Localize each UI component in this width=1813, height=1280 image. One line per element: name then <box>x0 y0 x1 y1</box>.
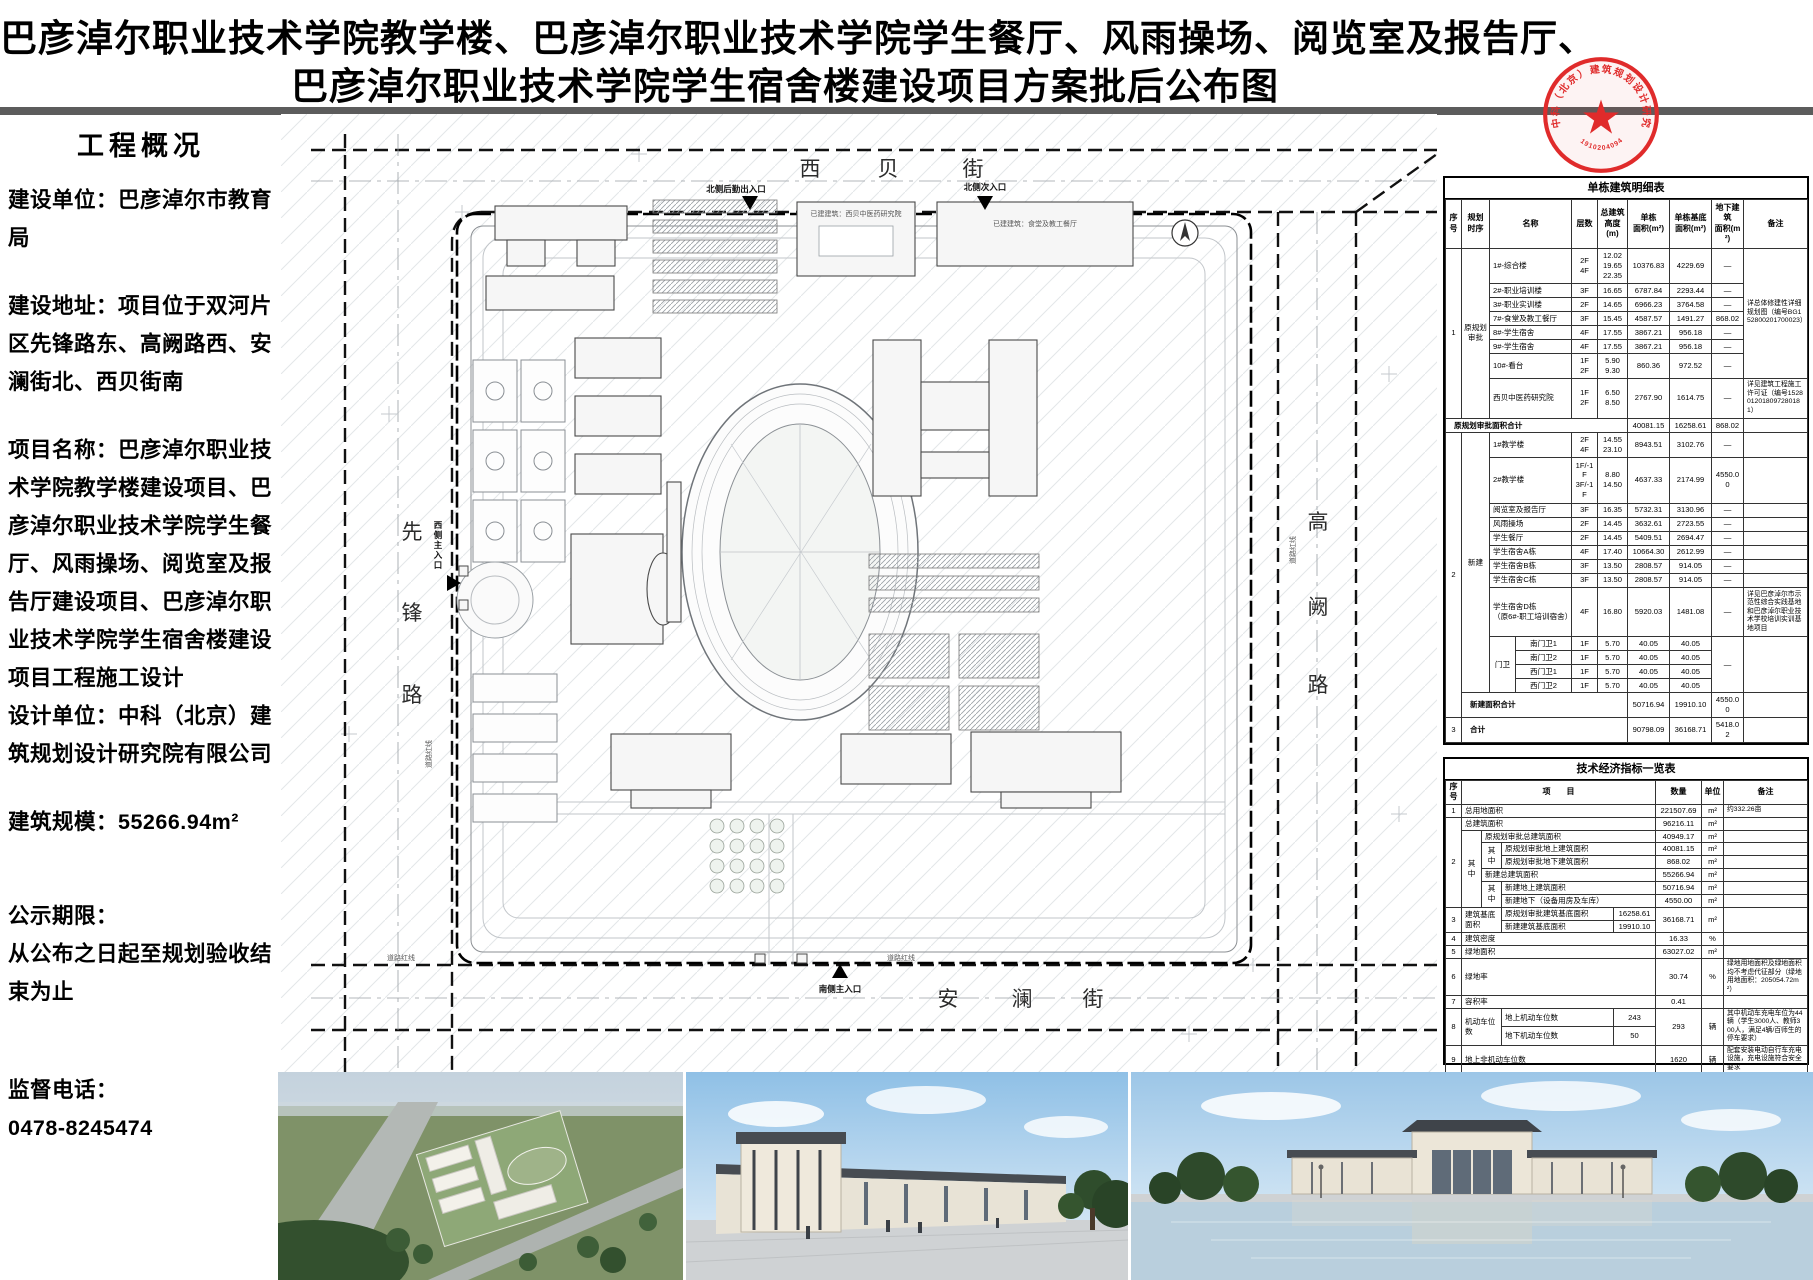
table-cell: 868.02 <box>1712 418 1744 432</box>
street-west-char: 锋 <box>402 601 423 625</box>
existing-canteen-label: 已建建筑：食堂及教工餐厅 <box>993 219 1077 228</box>
table-cell: 50716.94 <box>1656 881 1702 894</box>
table-cell: 5.70 <box>1598 679 1628 693</box>
table-cell: 16258.61 <box>1614 907 1656 920</box>
existing-canteen-building: 已建建筑：食堂及教工餐厅 <box>937 202 1133 266</box>
table-cell: 西贝中医药研究院 <box>1490 378 1572 418</box>
table-cell: 4229.69 <box>1670 248 1712 283</box>
table-cell: 地上非机动车位数 <box>1462 1045 1656 1073</box>
table-cell: 3 <box>1446 907 1462 933</box>
table-cell <box>1744 693 1808 718</box>
table-cell: 2F <box>1572 298 1598 312</box>
stand-building <box>667 482 681 622</box>
svg-text:道路红线: 道路红线 <box>387 953 415 962</box>
table-cell: 4550.00 <box>1656 894 1702 907</box>
table-cell: 9#-学生宿舍 <box>1490 340 1572 354</box>
table-cell: 西门卫1 <box>1516 665 1572 679</box>
table-cell <box>1744 637 1808 693</box>
street-east-char: 阙 <box>1308 595 1329 619</box>
table-cell: 4F <box>1572 340 1598 354</box>
table-cell: 17.40 <box>1598 545 1628 559</box>
street-east-char: 高 <box>1308 510 1329 534</box>
dormitory-slabs <box>575 338 661 494</box>
table-cell: 1#-综合楼 <box>1490 248 1572 283</box>
indicator-table-title: 技术经济指标一览表 <box>1445 759 1807 780</box>
reading-room-hall <box>571 534 679 644</box>
north-service-entrance-label: 北侧后勤出入口 <box>706 184 766 194</box>
table-cell: 7 <box>1446 996 1462 1009</box>
table-cell: 1F <box>1572 665 1598 679</box>
table-cell: 学生宿舍B栋 <box>1490 559 1572 573</box>
table-cell: 10#-看台 <box>1490 354 1572 379</box>
table-cell: 2293.44 <box>1670 284 1712 298</box>
table-cell: 36168.71 <box>1670 718 1712 743</box>
table-cell: 其中 <box>1462 830 1482 907</box>
table-cell: 5732.31 <box>1628 503 1670 517</box>
table-cell: 2808.57 <box>1628 573 1670 587</box>
table-cell: 860.36 <box>1628 354 1670 379</box>
table-cell: 3F <box>1572 312 1598 326</box>
publicity-period-label: 公示期限： <box>8 897 274 935</box>
north-arrow-icon <box>1172 220 1198 246</box>
table-cell: — <box>1712 284 1744 298</box>
table-cell: 1620 <box>1656 1045 1702 1073</box>
table-cell: 新建 <box>1462 432 1490 692</box>
table-cell: 建筑密度 <box>1462 933 1656 946</box>
table-cell: m² <box>1702 843 1724 856</box>
table-cell: 50716.94 <box>1628 693 1670 718</box>
table-cell: 16.33 <box>1656 933 1702 946</box>
table-cell: 绿地面积 <box>1462 946 1656 959</box>
table-cell: m² <box>1702 907 1724 933</box>
table-cell: 2F 4F <box>1572 248 1598 283</box>
table-cell: 55266.94 <box>1656 869 1702 882</box>
table-cell: 5.70 <box>1598 665 1628 679</box>
table-cell: 4 <box>1446 933 1462 946</box>
table-cell: m² <box>1702 869 1724 882</box>
svg-text:道路红线: 道路红线 <box>424 740 433 768</box>
table-cell: 新建面积合计 <box>1462 693 1628 718</box>
table-cell: 14.55 23.10 <box>1598 432 1628 457</box>
table-cell: 2723.55 <box>1670 517 1712 531</box>
table-cell: 19910.10 <box>1614 920 1656 933</box>
table-cell: 新建地下（设备用房及车库） <box>1502 894 1656 907</box>
table-cell: 1 <box>1446 248 1462 418</box>
street-east-char: 路 <box>1308 673 1329 697</box>
table-cell: — <box>1712 503 1744 517</box>
table-cell: — <box>1712 326 1744 340</box>
table-cell: 50 <box>1614 1027 1656 1045</box>
table-cell: 6.50 8.50 <box>1598 378 1628 418</box>
table-cell: m² <box>1702 830 1724 843</box>
table-cell: — <box>1712 587 1744 636</box>
table-cell: 3F <box>1572 559 1598 573</box>
table-cell: 3867.21 <box>1628 340 1670 354</box>
table-cell: 名称 <box>1490 200 1572 249</box>
table-cell: 1F <box>1572 679 1598 693</box>
table-cell: 地上机动车位数 <box>1502 1008 1614 1026</box>
table-cell: 2808.57 <box>1628 559 1670 573</box>
table-cell: 17.55 <box>1598 326 1628 340</box>
table-cell: 2 <box>1446 432 1462 717</box>
technical-indicator-table: 技术经济指标一览表 序号项 目数量单位备注1总用地面积221507.69m²约3… <box>1443 757 1809 1065</box>
table-cell: m² <box>1702 856 1724 869</box>
table-cell: 南门卫2 <box>1516 651 1572 665</box>
table-cell: — <box>1712 248 1744 283</box>
table-cell: 单栋基底 面积(m²) <box>1670 200 1712 249</box>
table-cell: 3F <box>1572 573 1598 587</box>
table-cell <box>1724 907 1808 933</box>
table-cell: 4F <box>1572 326 1598 340</box>
table-cell <box>1744 503 1808 517</box>
table-cell: 16.65 <box>1598 284 1628 298</box>
table-cell: 2767.90 <box>1628 378 1670 418</box>
table-cell: — <box>1712 354 1744 379</box>
table-cell: 5409.51 <box>1628 531 1670 545</box>
svg-text:道路红线: 道路红线 <box>887 953 915 962</box>
design-unit: 设计单位：中科（北京）建筑规划设计研究院有限公司 <box>8 697 274 773</box>
table-cell: 1F 2F <box>1572 354 1598 379</box>
table-cell <box>1744 517 1808 531</box>
table-cell: 学生宿舍D栋 （原6#-职工培训宿舍） <box>1490 587 1572 636</box>
table-cell: — <box>1712 298 1744 312</box>
table-cell: 16.35 <box>1598 503 1628 517</box>
table-cell: 40949.17 <box>1656 830 1702 843</box>
table-cell: 40.05 <box>1628 665 1670 679</box>
table-cell: 详见建筑工程施工许可证（编号1528012018097280181） <box>1744 378 1808 418</box>
table-cell: 1F 2F <box>1572 378 1598 418</box>
table-cell: 13.50 <box>1598 559 1628 573</box>
table-cell: 2612.99 <box>1670 545 1712 559</box>
table-cell: 7#-食堂及教工餐厅 <box>1490 312 1572 326</box>
table-cell <box>1744 418 1808 432</box>
table-cell: 学生宿舍C栋 <box>1490 573 1572 587</box>
table-cell: 1491.27 <box>1670 312 1712 326</box>
table-cell: 96216.11 <box>1656 817 1702 830</box>
building-rendering-photo <box>686 1072 1128 1280</box>
table-cell <box>1744 573 1808 587</box>
svg-text:道路红线: 道路红线 <box>1288 536 1297 564</box>
table-cell: 门卫 <box>1490 637 1516 693</box>
table-cell: 40.05 <box>1670 637 1712 651</box>
table-cell: 原规划审批总建筑面积 <box>1482 830 1656 843</box>
table-cell: 3130.96 <box>1670 503 1712 517</box>
table-cell: 学生餐厅 <box>1490 531 1572 545</box>
table-cell: 40.05 <box>1628 651 1670 665</box>
table-cell: 新建总建筑面积 <box>1482 869 1656 882</box>
table-cell: 3 <box>1446 718 1462 743</box>
table-cell: 绿地率 <box>1462 959 1656 996</box>
table-cell: 956.18 <box>1670 340 1712 354</box>
building-detail-table: 单栋建筑明细表 序号规划 时序名称层数总建筑 高度(m)单栋 面积(m²)单栋基… <box>1443 176 1809 745</box>
table-cell <box>1724 933 1808 946</box>
table-cell: 10664.30 <box>1628 545 1670 559</box>
table-cell: 14.45 <box>1598 517 1628 531</box>
table-cell: 3632.61 <box>1628 517 1670 531</box>
table-cell: 16.80 <box>1598 587 1628 636</box>
project-name: 项目名称：巴彦淖尔职业技术学院教学楼建设项目、巴彦淖尔职业技术学院学生餐厅、风雨… <box>8 431 274 697</box>
table-cell: 6 <box>1446 959 1462 996</box>
table-cell: 1F <box>1572 637 1598 651</box>
table-cell: 5 <box>1446 946 1462 959</box>
street-north-char: 街 <box>963 157 984 181</box>
table-cell: 总建筑面积 <box>1462 817 1656 830</box>
table-cell: 40081.15 <box>1656 843 1702 856</box>
table-cell: 地下机动车位数 <box>1502 1027 1614 1045</box>
building-table-title: 单栋建筑明细表 <box>1445 178 1807 199</box>
table-cell: 建筑基底面积 <box>1462 907 1502 933</box>
table-cell <box>1724 996 1808 1009</box>
table-cell: 40.05 <box>1670 651 1712 665</box>
existing-research-label: 已建建筑：西贝中医药研究院 <box>811 209 902 218</box>
table-cell <box>1724 817 1808 830</box>
table-cell: m² <box>1702 804 1724 817</box>
table-cell: 总用地面积 <box>1462 804 1656 817</box>
table-cell: 层数 <box>1572 200 1598 249</box>
table-cell: 293 <box>1656 1008 1702 1045</box>
table-cell: 15.45 <box>1598 312 1628 326</box>
table-cell <box>1744 545 1808 559</box>
table-cell: 3#-职业实训楼 <box>1490 298 1572 312</box>
table-cell: 机动车位数 <box>1462 1008 1502 1045</box>
table-cell: 辆 <box>1702 1045 1724 1073</box>
table-cell <box>1724 946 1808 959</box>
table-cell: 914.05 <box>1670 573 1712 587</box>
page-title-line2: 巴彦淖尔职业技术学院学生宿舍楼建设项目方案批后公布图 <box>0 56 1570 110</box>
table-cell: 6966.23 <box>1628 298 1670 312</box>
table-cell: 17.55 <box>1598 340 1628 354</box>
table-cell: 原规划审批建筑基底面积 <box>1502 907 1614 920</box>
table-cell: 8.80 14.50 <box>1598 457 1628 503</box>
table-cell <box>1744 531 1808 545</box>
construction-unit: 建设单位：巴彦淖尔市教育局 <box>8 181 274 257</box>
table-cell <box>1724 869 1808 882</box>
table-cell: 地下建筑 面积(m²) <box>1712 200 1744 249</box>
table-cell: — <box>1712 637 1744 693</box>
table-cell: 2#-职业培训楼 <box>1490 284 1572 298</box>
table-cell: 其中机动车充电车位为44辆（学生3000人、教师300人，满足4辆/百师生的停车… <box>1724 1008 1808 1045</box>
table-cell <box>1724 843 1808 856</box>
street-south-char: 澜 <box>1012 987 1033 1011</box>
table-cell: 其中 <box>1482 881 1502 907</box>
table-cell: 1F/-1F 3F/-1F <box>1572 457 1598 503</box>
table-cell: 原规划 审批 <box>1462 248 1490 418</box>
table-cell: 30.74 <box>1656 959 1702 996</box>
west-main-entrance-label: 西侧主入口 <box>433 520 443 570</box>
street-south-char: 街 <box>1083 987 1104 1011</box>
table-cell: 1F <box>1572 651 1598 665</box>
table-cell: 序号 <box>1446 781 1462 805</box>
table-cell: 南门卫1 <box>1516 637 1572 651</box>
table-cell: 40.05 <box>1670 665 1712 679</box>
table-cell: 914.05 <box>1670 559 1712 573</box>
table-cell: 868.02 <box>1712 312 1744 326</box>
table-cell: 合计 <box>1462 718 1628 743</box>
table-cell: 原规划审批地上建筑面积 <box>1502 843 1656 856</box>
table-cell: 5920.03 <box>1628 587 1670 636</box>
table-cell: 4587.57 <box>1628 312 1670 326</box>
construction-address: 建设地址：项目位于双河片区先锋路东、高阙路西、安澜街北、西贝街南 <box>8 287 274 401</box>
table-cell: 5.70 <box>1598 637 1628 651</box>
table-cell <box>1744 559 1808 573</box>
supervision-phone-label: 监督电话： <box>8 1071 274 1109</box>
publicity-period: 从公布之日起至规划验收结束为止 <box>8 935 274 1011</box>
table-cell: 19910.10 <box>1670 693 1712 718</box>
street-north-char: 西 <box>800 157 821 181</box>
table-cell: 2#教学楼 <box>1490 457 1572 503</box>
table-cell: 2F <box>1572 531 1598 545</box>
official-seal: 中科（北京）建筑规划设计研究院有限公司 191020409465 <box>1540 54 1662 176</box>
table-cell: 1#教学楼 <box>1490 432 1572 457</box>
table-cell <box>1744 718 1808 743</box>
table-cell: 956.18 <box>1670 326 1712 340</box>
table-cell: 972.52 <box>1670 354 1712 379</box>
table-cell: 12.02 19.65 22.35 <box>1598 248 1628 283</box>
table-cell: — <box>1712 340 1744 354</box>
table-cell: — <box>1712 545 1744 559</box>
table-cell: m² <box>1702 946 1724 959</box>
table-cell: 8#-学生宿舍 <box>1490 326 1572 340</box>
parking-strips-east <box>869 554 1039 612</box>
table-cell: 4550.00 <box>1712 457 1744 503</box>
table-cell <box>1744 432 1808 457</box>
table-cell: 3F <box>1572 503 1598 517</box>
table-cell: 40.05 <box>1628 637 1670 651</box>
table-cell: 2 <box>1446 817 1462 907</box>
table-cell: 36168.71 <box>1656 907 1702 933</box>
table-cell <box>1724 830 1808 843</box>
project-overview-panel: 工程概况 建设单位：巴彦淖尔市教育局 建设地址：项目位于双河片区先锋路东、高阙路… <box>0 118 282 1177</box>
table-cell: — <box>1712 559 1744 573</box>
table-cell <box>1724 894 1808 907</box>
table-cell: 2174.99 <box>1670 457 1712 503</box>
table-cell: 单位 <box>1702 781 1724 805</box>
table-cell: 其中 <box>1482 843 1502 869</box>
table-cell: 14.45 <box>1598 531 1628 545</box>
table-cell: — <box>1712 573 1744 587</box>
table-cell: 4F <box>1572 545 1598 559</box>
table-cell: 约332.26亩 <box>1724 804 1808 817</box>
table-cell: 13.50 <box>1598 573 1628 587</box>
table-cell: 单栋 面积(m²) <box>1628 200 1670 249</box>
table-cell: 5.90 9.30 <box>1598 354 1628 379</box>
table-cell: 原规划审批面积合计 <box>1446 418 1628 432</box>
table-cell: m² <box>1702 817 1724 830</box>
table-cell: 5418.02 <box>1712 718 1744 743</box>
page-title-line1: 巴彦淖尔职业技术学院教学楼、巴彦淖尔职业技术学院学生餐厅、风雨操场、阅览室及报告… <box>0 8 1570 62</box>
table-cell: 备注 <box>1744 200 1808 249</box>
table-cell: 1 <box>1446 804 1462 817</box>
table-cell: 3F <box>1572 284 1598 298</box>
table-cell: 4637.33 <box>1628 457 1670 503</box>
street-west-char: 路 <box>402 683 423 707</box>
site-plan-drawing: 已建建筑：西贝中医药研究院 已建建筑：食堂及教工餐厅 <box>281 114 1437 1072</box>
table-cell: 2F <box>1572 517 1598 531</box>
table-cell: 配套安装电动自行车充电设施，充电设施符合安全要求 <box>1724 1045 1808 1073</box>
table-cell: m² <box>1702 881 1724 894</box>
table-cell: — <box>1712 432 1744 457</box>
street-west-char: 先 <box>402 520 423 544</box>
table-cell <box>1724 856 1808 869</box>
table-cell: — <box>1712 517 1744 531</box>
table-cell: 2694.47 <box>1670 531 1712 545</box>
street-south-char: 安 <box>938 987 959 1011</box>
table-cell <box>1724 881 1808 894</box>
table-cell: 西门卫2 <box>1516 679 1572 693</box>
table-cell: 4F <box>1572 587 1598 636</box>
front-rendering-photo <box>1131 1072 1813 1280</box>
table-cell: 风雨操场 <box>1490 517 1572 531</box>
table-cell: 3764.58 <box>1670 298 1712 312</box>
table-cell: 6787.84 <box>1628 284 1670 298</box>
table-cell: 4550.00 <box>1712 693 1744 718</box>
table-cell: 3102.76 <box>1670 432 1712 457</box>
table-cell: 8 <box>1446 1008 1462 1045</box>
table-cell: 14.65 <box>1598 298 1628 312</box>
table-cell: 40.05 <box>1628 679 1670 693</box>
table-cell: m² <box>1702 894 1724 907</box>
table-cell: 辆 <box>1702 1008 1724 1045</box>
table-cell: 绿地用地面积及绿地面积均不考虑代征部分（绿地用地面积：205054.72m²） <box>1724 959 1808 996</box>
table-cell: 5.70 <box>1598 651 1628 665</box>
table-cell: 规划 时序 <box>1462 200 1490 249</box>
table-cell: 243 <box>1614 1008 1656 1026</box>
table-cell: 备注 <box>1724 781 1808 805</box>
table-cell: 新建建筑基底面积 <box>1502 920 1614 933</box>
table-cell: 原规划审批地下建筑面积 <box>1502 856 1656 869</box>
table-cell: 2F 4F <box>1572 432 1598 457</box>
table-cell: 9 <box>1446 1045 1462 1073</box>
table-cell: — <box>1712 531 1744 545</box>
table-cell: 16258.61 <box>1670 418 1712 432</box>
table-cell: 详总体修建性详细规划图（编号BG152800201700023） <box>1744 248 1808 378</box>
table-cell: 90798.09 <box>1628 718 1670 743</box>
table-cell: 学生宿舍A栋 <box>1490 545 1572 559</box>
table-cell: 详见巴彦淖尔市示范性综合实践基地和巴彦淖尔职业技术学校培训实训基地项目 <box>1744 587 1808 636</box>
south-main-entrance-label: 南侧主入口 <box>819 984 862 994</box>
table-cell: 221507.69 <box>1656 804 1702 817</box>
table-cell: 40081.15 <box>1628 418 1670 432</box>
table-cell: 8943.51 <box>1628 432 1670 457</box>
table-cell: 1614.75 <box>1670 378 1712 418</box>
overview-heading: 工程概况 <box>8 124 274 163</box>
table-cell: 阅览室及报告厅 <box>1490 503 1572 517</box>
table-cell: 序号 <box>1446 200 1462 249</box>
table-cell: 868.02 <box>1656 856 1702 869</box>
table-cell: — <box>1712 378 1744 418</box>
table-cell <box>1744 457 1808 503</box>
north-secondary-entrance-label: 北侧次入口 <box>964 182 1007 192</box>
table-cell: 40.05 <box>1670 679 1712 693</box>
table-cell: 项 目 <box>1462 781 1656 805</box>
table-cell: 总建筑 高度(m) <box>1598 200 1628 249</box>
table-cell: % <box>1702 933 1724 946</box>
table-cell: 63027.02 <box>1656 946 1702 959</box>
supervision-phone: 0478-8245474 <box>8 1109 274 1147</box>
table-cell: 容积率 <box>1462 996 1656 1009</box>
table-cell: 3867.21 <box>1628 326 1670 340</box>
table-cell: 0.41 <box>1656 996 1702 1009</box>
building-scale: 建筑规模：55266.94m² <box>8 803 274 841</box>
table-cell: 数量 <box>1656 781 1702 805</box>
table-cell: 10376.83 <box>1628 248 1670 283</box>
table-cell <box>1702 996 1724 1009</box>
table-cell: 1481.08 <box>1670 587 1712 636</box>
aerial-rendering-photo <box>278 1072 683 1280</box>
table-cell: % <box>1702 959 1724 996</box>
table-cell: 新建地上建筑面积 <box>1502 881 1656 894</box>
existing-research-building: 已建建筑：西贝中医药研究院 <box>797 202 915 276</box>
